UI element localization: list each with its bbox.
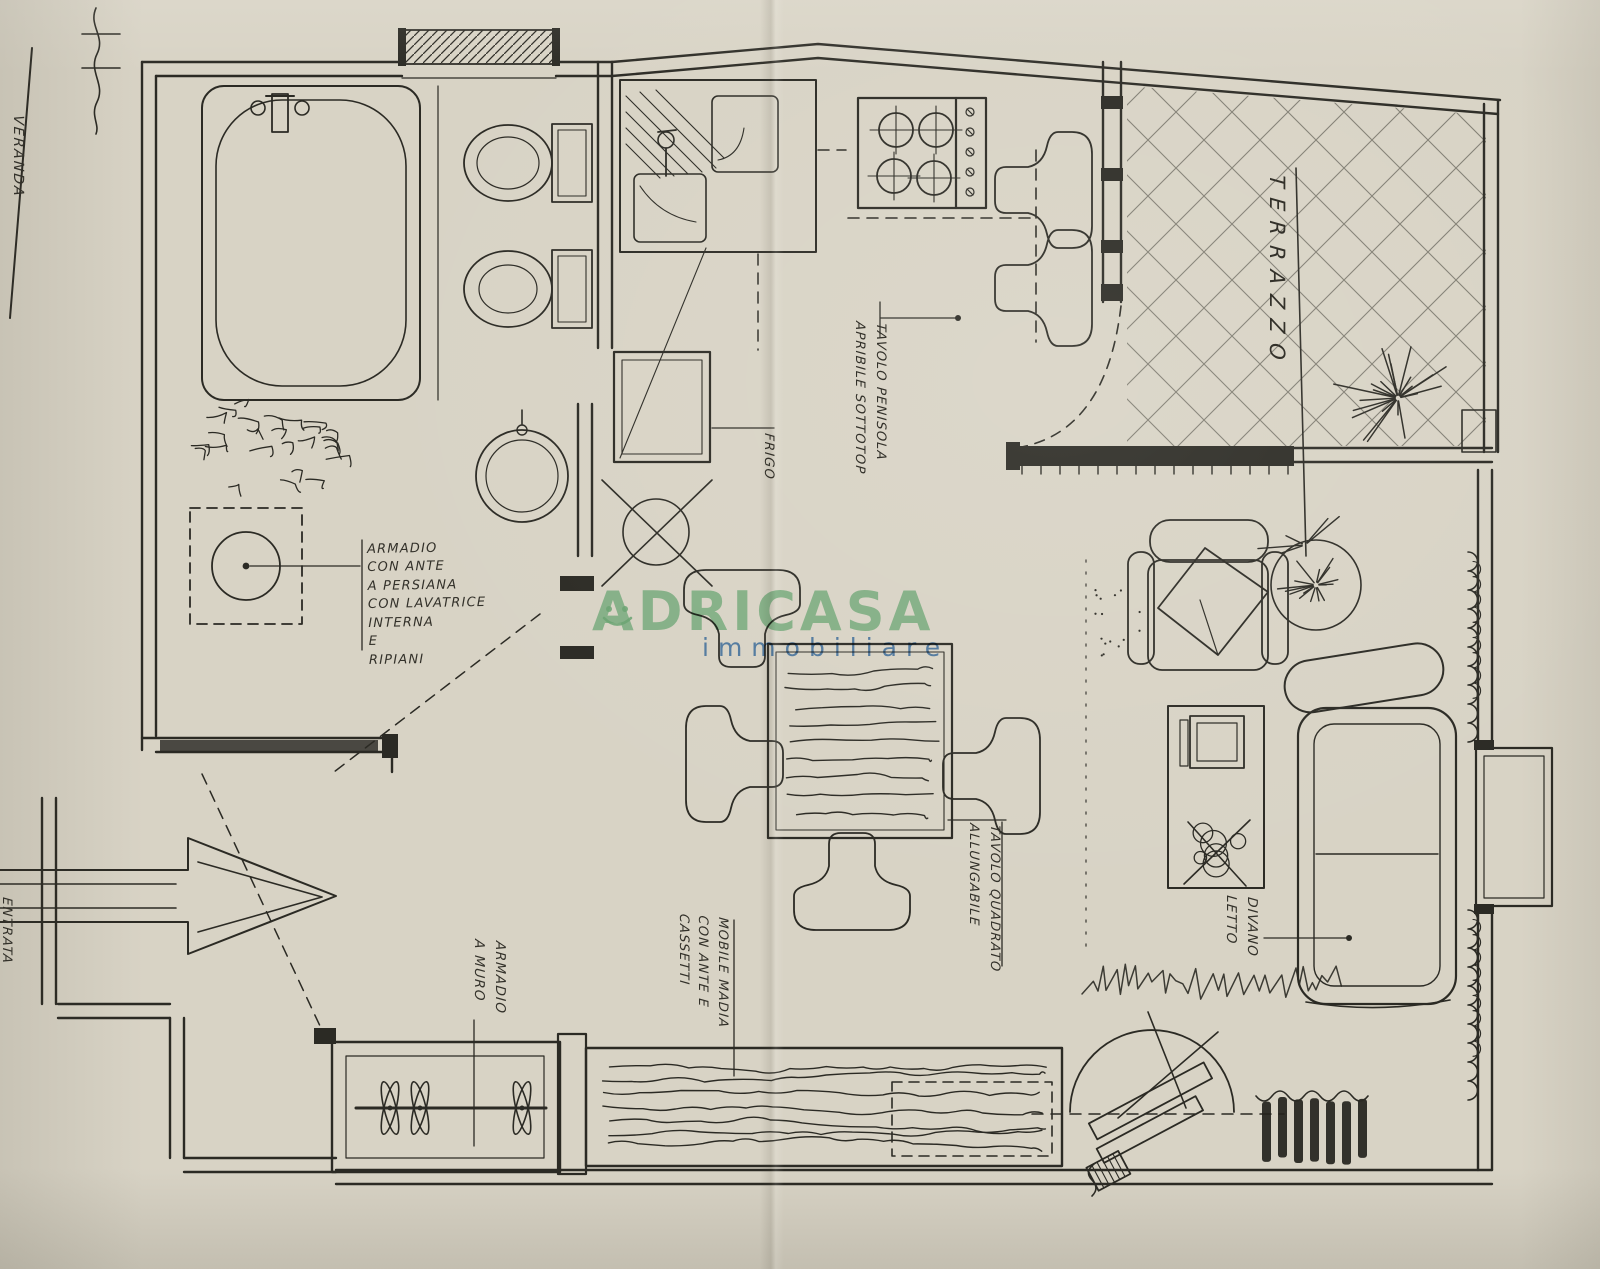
peninsula-table [848,150,1036,342]
floor-plan-drawing [0,0,1600,1269]
sofa-bed [1264,640,1456,1008]
bathtub [202,86,420,400]
floor-texture [191,400,351,497]
dining-chairs [684,570,1040,930]
armchair [1128,520,1288,670]
entry-arrow [0,838,336,954]
dining-table [768,644,1006,966]
toilet [464,250,592,328]
fridge [614,248,774,462]
veranda-wall [10,8,120,318]
terrace-door-wall [1016,62,1123,448]
floor-stipple [1094,589,1140,656]
cooktop [858,98,986,208]
sideboard-woodgrain [603,1064,1047,1151]
round-plant-leaves [1258,517,1339,602]
table-woodgrain [785,667,939,819]
sideboard [586,920,1062,1166]
entry-walls [42,614,540,1172]
boiler [602,480,712,586]
round-plant [1271,540,1361,630]
tv-table [1168,706,1264,888]
bathroom-window [398,28,560,78]
kitchen-sink [620,80,846,350]
handwritten-note [1082,964,1341,999]
washbasin [476,410,568,522]
desk-chair [1032,1012,1284,1196]
radiator [1256,1091,1368,1165]
washing-machine [190,508,362,650]
kitchen-chairs [995,132,1092,346]
bidet [464,124,592,202]
terrace [1006,86,1498,556]
parapet-ticks [1022,466,1288,474]
wall-wardrobe [332,1020,586,1174]
bathroom-door-jambs [560,576,594,659]
